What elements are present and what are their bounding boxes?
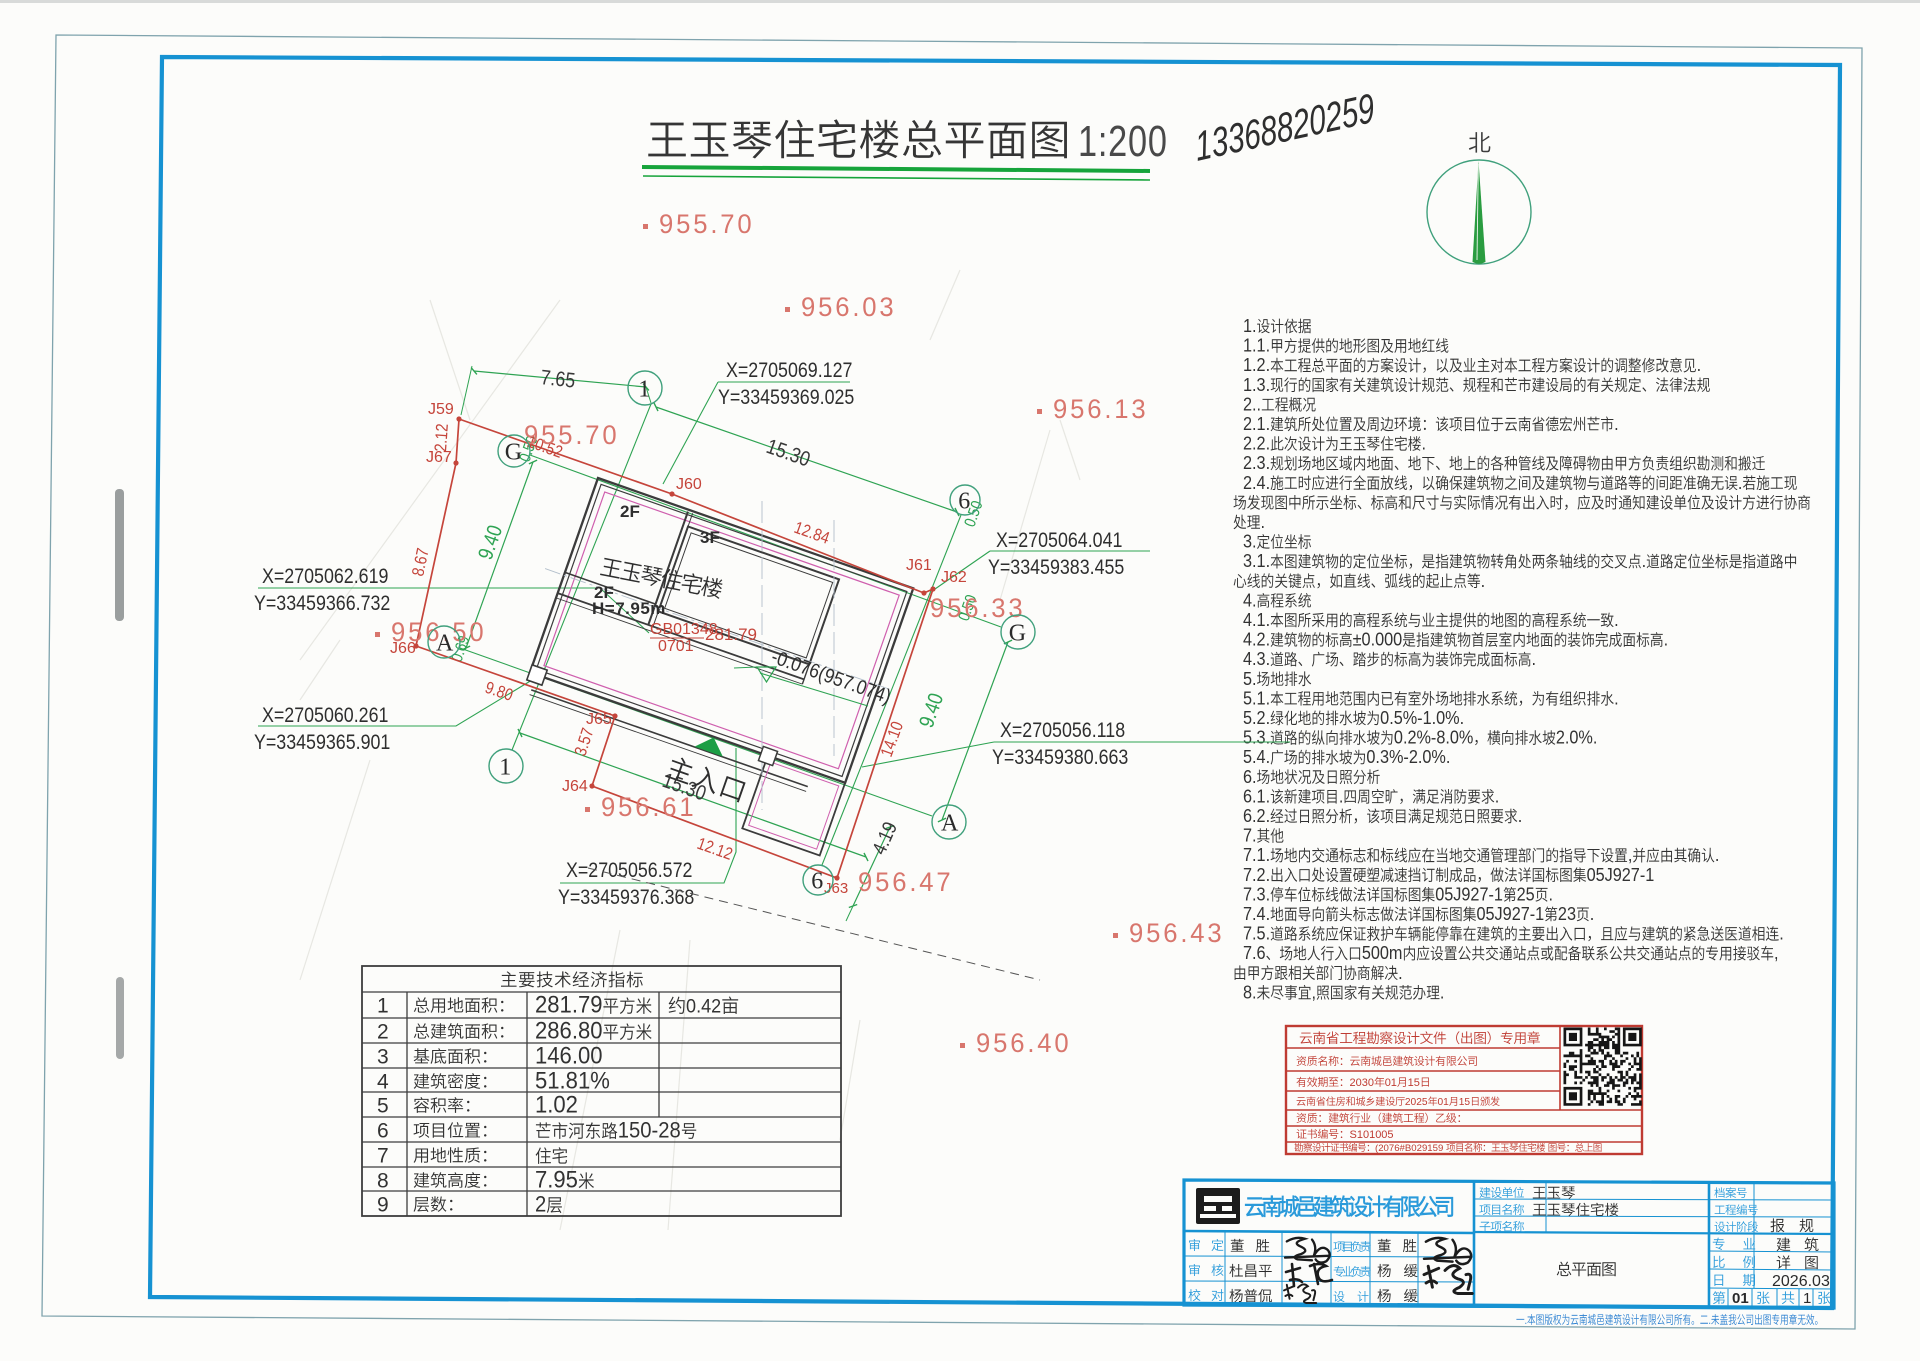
- svg-text:.: .: [1590, 903, 1595, 924]
- svg-text:8.: 8.: [1243, 981, 1257, 1002]
- svg-text:2026.03: 2026.03: [1772, 1273, 1830, 1290]
- svg-text:±0.000: ±0.000: [1353, 628, 1403, 649]
- svg-text:1.2.: 1.2.: [1243, 354, 1270, 375]
- svg-text:(2076#B029159: (2076#B029159: [1375, 1143, 1443, 1154]
- svg-text:3.1.: 3.1.: [1243, 550, 1270, 571]
- svg-text:956.40: 956.40: [976, 1027, 1072, 1058]
- svg-text:J65: J65: [586, 711, 612, 728]
- svg-text:.: .: [1518, 805, 1523, 826]
- svg-text:6.1.: 6.1.: [1243, 785, 1270, 806]
- svg-text:2: 2: [535, 1193, 546, 1217]
- svg-text:6: 6: [958, 489, 970, 515]
- svg-text:500m: 500m: [1362, 942, 1403, 963]
- svg-text:X=2705060.261: X=2705060.261: [262, 704, 388, 728]
- svg-text:1: 1: [499, 755, 511, 781]
- svg-text:0.3%-2.0%.: 0.3%-2.0%.: [1366, 746, 1450, 767]
- svg-text:G: G: [1009, 621, 1026, 647]
- svg-text:.: .: [1697, 354, 1702, 375]
- svg-text:3F: 3F: [700, 528, 720, 547]
- svg-text:.: .: [1614, 609, 1619, 630]
- svg-text:956.61: 956.61: [601, 791, 697, 822]
- svg-text:6.: 6.: [1243, 766, 1257, 787]
- svg-text:J61: J61: [906, 557, 932, 574]
- svg-text:Y=33459369.025: Y=33459369.025: [718, 386, 855, 410]
- svg-text:281.79: 281.79: [705, 625, 757, 644]
- svg-text:9: 9: [377, 1194, 389, 1217]
- svg-text:0.42: 0.42: [686, 995, 721, 1017]
- svg-text:J59: J59: [428, 401, 454, 418]
- svg-text:7.5.: 7.5.: [1243, 922, 1270, 943]
- svg-text:.: .: [1525, 1315, 1527, 1328]
- svg-text:Y=33459366.732: Y=33459366.732: [254, 592, 390, 616]
- svg-text:1.1.: 1.1.: [1243, 334, 1270, 355]
- svg-text:4.3.: 4.3.: [1243, 648, 1270, 669]
- svg-text:0.2%-8.0%: 0.2%-8.0%: [1394, 726, 1474, 747]
- svg-text:.: .: [1738, 472, 1743, 493]
- svg-text:X=2705062.619: X=2705062.619: [262, 565, 388, 589]
- svg-text:2.2.: 2.2.: [1243, 432, 1270, 453]
- svg-text:1.3.: 1.3.: [1243, 374, 1270, 395]
- svg-text:01: 01: [1438, 1097, 1450, 1108]
- svg-text:.: .: [1715, 844, 1720, 865]
- svg-text:.: .: [1532, 648, 1537, 669]
- svg-text:01: 01: [1385, 1077, 1397, 1089]
- svg-text:X=2705064.041: X=2705064.041: [996, 529, 1122, 553]
- svg-text:0701: 0701: [658, 638, 694, 655]
- svg-text:2.0%.: 2.0%.: [1556, 726, 1598, 747]
- svg-text:2: 2: [377, 1021, 389, 1044]
- svg-text:Y=33459376.368: Y=33459376.368: [558, 886, 694, 910]
- svg-text:1: 1: [377, 995, 389, 1018]
- svg-text:G: G: [505, 440, 522, 466]
- svg-text:7.: 7.: [1243, 824, 1257, 845]
- svg-text:5.: 5.: [1243, 668, 1257, 689]
- svg-text:286.80: 286.80: [535, 1017, 603, 1044]
- svg-text:.: .: [1398, 962, 1403, 983]
- svg-text:.: .: [1440, 981, 1445, 1002]
- svg-text:5.3.: 5.3.: [1243, 726, 1270, 747]
- svg-text:,: ,: [1628, 844, 1633, 865]
- svg-text:956.13: 956.13: [1053, 393, 1149, 424]
- svg-text:5.1.: 5.1.: [1243, 687, 1270, 708]
- svg-text:05J927-1: 05J927-1: [1435, 883, 1503, 904]
- svg-text:.: .: [1421, 432, 1426, 453]
- svg-text:7.65: 7.65: [539, 366, 576, 393]
- svg-text:H=7.95m: H=7.95m: [592, 599, 666, 618]
- svg-text:7.2.: 7.2.: [1243, 864, 1270, 885]
- svg-text:05J927-1: 05J927-1: [1476, 903, 1544, 924]
- svg-text:2.1.: 2.1.: [1243, 413, 1270, 434]
- svg-text:.: .: [1261, 511, 1266, 532]
- svg-text:0.5%-1.0%.: 0.5%-1.0%.: [1380, 707, 1464, 728]
- svg-text:8: 8: [377, 1170, 389, 1193]
- svg-text:A: A: [941, 811, 959, 837]
- svg-text:25: 25: [1517, 883, 1535, 904]
- svg-text:7.6: 7.6: [1243, 942, 1266, 963]
- svg-text:2.3.: 2.3.: [1243, 452, 1270, 473]
- svg-text:.: .: [1779, 922, 1784, 943]
- svg-text:150-28: 150-28: [618, 1119, 681, 1143]
- svg-text:7.4.: 7.4.: [1243, 903, 1270, 924]
- svg-text:7.1.: 7.1.: [1243, 844, 1270, 865]
- svg-text:1.02: 1.02: [535, 1091, 578, 1118]
- svg-text:2..: 2..: [1243, 393, 1261, 414]
- svg-text:J62: J62: [941, 569, 967, 586]
- svg-text:.: .: [1614, 687, 1619, 708]
- svg-text:1: 1: [1803, 1290, 1811, 1307]
- svg-text:.: .: [1481, 570, 1486, 591]
- svg-text:.: .: [1708, 1315, 1710, 1328]
- svg-text:6.2.: 6.2.: [1243, 805, 1270, 826]
- svg-text:J64: J64: [562, 778, 588, 795]
- svg-text:23: 23: [1558, 903, 1576, 924]
- svg-text:S101005: S101005: [1350, 1129, 1394, 1141]
- svg-text:1:200: 1:200: [1078, 117, 1168, 166]
- svg-text:J60: J60: [676, 476, 702, 493]
- svg-text:2.12: 2.12: [432, 423, 452, 452]
- svg-text:X=2705069.127: X=2705069.127: [726, 359, 852, 383]
- svg-text:.: .: [1495, 785, 1500, 806]
- svg-text:51.81%: 51.81%: [535, 1067, 610, 1094]
- svg-text:01: 01: [1732, 1290, 1749, 1307]
- svg-text:15: 15: [1408, 1077, 1420, 1089]
- svg-text:05J927-1: 05J927-1: [1587, 864, 1655, 885]
- svg-text:146.00: 146.00: [535, 1042, 603, 1069]
- svg-text:2025: 2025: [1405, 1097, 1428, 1108]
- svg-text:4.2.: 4.2.: [1243, 628, 1270, 649]
- svg-text:2030: 2030: [1350, 1077, 1374, 1089]
- svg-text:7: 7: [377, 1145, 389, 1168]
- svg-text:956.47: 956.47: [858, 866, 954, 897]
- svg-text:.: .: [1548, 883, 1553, 904]
- svg-text:5.4.: 5.4.: [1243, 746, 1270, 767]
- svg-text:3.: 3.: [1243, 530, 1257, 551]
- svg-text:4.: 4.: [1243, 589, 1257, 610]
- svg-text:.: .: [1339, 785, 1344, 806]
- svg-text:A: A: [436, 631, 454, 657]
- svg-text:4.1.: 4.1.: [1243, 609, 1270, 630]
- svg-text:5: 5: [377, 1095, 389, 1118]
- svg-text:4: 4: [377, 1071, 389, 1094]
- svg-text:3: 3: [377, 1046, 389, 1069]
- svg-text:955.70: 955.70: [659, 208, 755, 239]
- svg-text:956.33: 956.33: [930, 592, 1026, 623]
- svg-text:,: ,: [1312, 981, 1317, 1002]
- svg-text:7.3.: 7.3.: [1243, 883, 1270, 904]
- svg-text:Y=33459380.663: Y=33459380.663: [992, 746, 1128, 770]
- svg-text:.: .: [1664, 628, 1669, 649]
- svg-text:5.2.: 5.2.: [1243, 707, 1270, 728]
- svg-text:6: 6: [377, 1120, 389, 1143]
- svg-text:Y=33459383.455: Y=33459383.455: [988, 556, 1125, 580]
- svg-text:7.95: 7.95: [535, 1166, 578, 1193]
- svg-text:1: 1: [638, 377, 650, 403]
- svg-text:X=2705056.572: X=2705056.572: [566, 859, 692, 883]
- svg-text:956.43: 956.43: [1129, 917, 1225, 948]
- svg-text:.: .: [1614, 413, 1619, 434]
- svg-text:2.4.: 2.4.: [1243, 472, 1270, 493]
- svg-text:.: .: [1642, 550, 1647, 571]
- svg-text:956.03: 956.03: [801, 291, 897, 322]
- svg-text:Y=33459365.901: Y=33459365.901: [254, 731, 390, 755]
- svg-text:15: 15: [1459, 1097, 1471, 1108]
- svg-text:J63: J63: [824, 880, 848, 897]
- svg-text:955.70: 955.70: [524, 419, 620, 450]
- svg-text:,: ,: [1774, 942, 1779, 963]
- svg-text:2F: 2F: [620, 502, 640, 521]
- svg-text:281.79: 281.79: [535, 991, 603, 1018]
- svg-text:X=2705056.118: X=2705056.118: [1000, 719, 1125, 743]
- svg-text:1.: 1.: [1243, 315, 1257, 336]
- svg-text:6: 6: [811, 869, 823, 895]
